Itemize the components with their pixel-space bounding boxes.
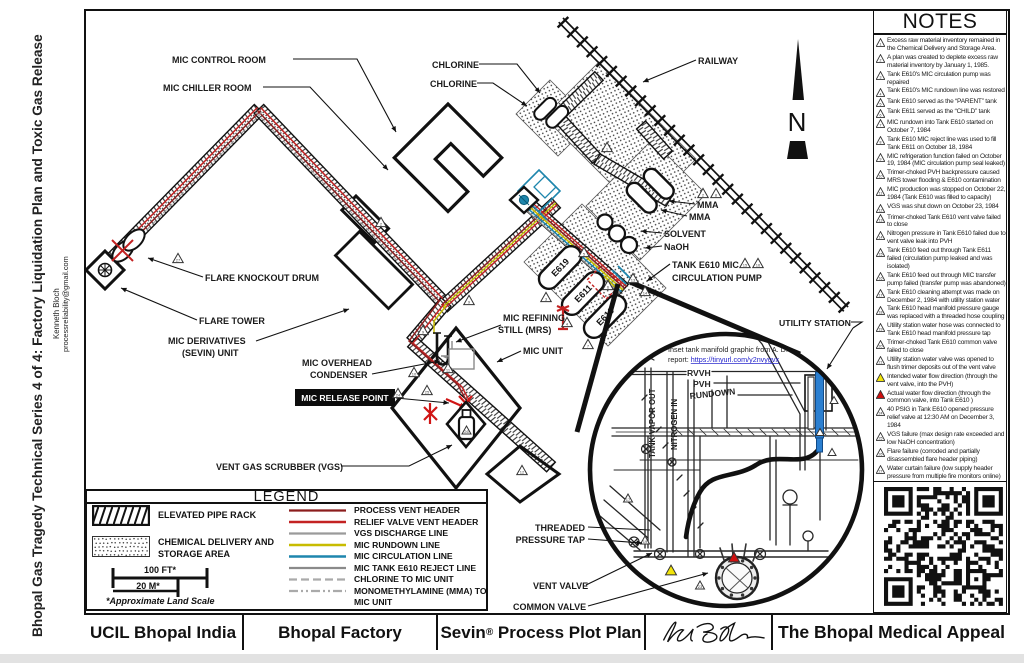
svg-text:17: 17 — [626, 497, 631, 502]
svg-text:N: N — [788, 107, 807, 137]
svg-text:MIC CONTROL ROOM: MIC CONTROL ROOM — [172, 55, 266, 65]
svg-text:TANK E610 MIC: TANK E610 MIC — [672, 260, 739, 270]
svg-text:18: 18 — [879, 310, 883, 314]
svg-text:5: 5 — [880, 103, 882, 107]
svg-text:13: 13 — [879, 218, 883, 222]
svg-text:THREADED: THREADED — [535, 523, 586, 533]
svg-text:25: 25 — [879, 436, 883, 440]
svg-text:MIC OVERHEAD: MIC OVERHEAD — [302, 358, 373, 368]
svg-text:14: 14 — [879, 235, 883, 239]
svg-text:11: 11 — [879, 191, 883, 195]
svg-text:COMMON VALVE: COMMON VALVE — [513, 602, 586, 612]
svg-text:10: 10 — [412, 371, 417, 376]
svg-text:25: 25 — [425, 389, 430, 394]
svg-text:24: 24 — [879, 411, 883, 415]
svg-text:13: 13 — [631, 277, 636, 282]
svg-text:TANK-VAPOR OUT: TANK-VAPOR OUT — [648, 388, 657, 458]
svg-text:12: 12 — [520, 469, 525, 474]
svg-text:2: 2 — [880, 59, 882, 63]
svg-text:24: 24 — [396, 392, 401, 397]
svg-text:26: 26 — [879, 453, 883, 457]
svg-text:21: 21 — [879, 361, 883, 365]
svg-text:16: 16 — [879, 277, 883, 281]
svg-text:14: 14 — [643, 290, 648, 295]
svg-text:17: 17 — [879, 294, 883, 298]
svg-text:MMA: MMA — [689, 212, 711, 222]
svg-text:MIC RELEASE POINT: MIC RELEASE POINT — [301, 393, 389, 403]
svg-text:VENT VALVE: VENT VALVE — [533, 581, 588, 591]
svg-text:(SEVIN) UNIT: (SEVIN) UNIT — [182, 348, 239, 358]
svg-text:NaOH: NaOH — [664, 242, 689, 252]
svg-text:RVVH: RVVH — [687, 368, 711, 378]
svg-text:9: 9 — [880, 157, 882, 161]
svg-text:100 FT*: 100 FT* — [144, 565, 177, 575]
svg-text:15: 15 — [879, 252, 883, 256]
svg-text:7: 7 — [880, 124, 882, 128]
svg-text:20: 20 — [879, 344, 883, 348]
svg-text:16: 16 — [756, 262, 761, 267]
svg-text:CHLORINE: CHLORINE — [430, 79, 477, 89]
svg-text:27: 27 — [879, 470, 883, 474]
svg-text:MIC DERIVATIVES: MIC DERIVATIVES — [168, 336, 246, 346]
svg-text:26: 26 — [464, 429, 469, 434]
svg-text:19: 19 — [643, 539, 648, 544]
svg-text:10: 10 — [879, 174, 883, 178]
svg-text:27: 27 — [176, 257, 181, 262]
svg-text:19: 19 — [879, 327, 883, 331]
svg-text:CHLORINE: CHLORINE — [432, 60, 479, 70]
svg-text:FLARE KNOCKOUT DRUM: FLARE KNOCKOUT DRUM — [205, 273, 319, 283]
svg-text:8: 8 — [880, 141, 882, 145]
svg-text:6: 6 — [880, 113, 882, 117]
svg-text:23: 23 — [698, 584, 703, 589]
svg-text:STILL (MRS): STILL (MRS) — [498, 325, 551, 335]
svg-text:1: 1 — [880, 42, 882, 46]
svg-text:15: 15 — [743, 262, 748, 267]
svg-text:4: 4 — [880, 92, 882, 96]
svg-text:3: 3 — [880, 76, 882, 80]
svg-text:MMA: MMA — [697, 200, 719, 210]
svg-text:report: https://tinyurl.com/y2: report: https://tinyurl.com/y2nvygvx — [668, 355, 779, 364]
svg-text:PVH: PVH — [693, 379, 711, 389]
svg-text:MIC REFINING: MIC REFINING — [503, 313, 565, 323]
svg-text:NITROGEN IN: NITROGEN IN — [670, 399, 679, 450]
svg-text:12: 12 — [879, 208, 883, 212]
svg-text:20 M*: 20 M* — [136, 581, 160, 591]
svg-text:UTILITY STATION: UTILITY STATION — [779, 318, 851, 328]
svg-text:RAILWAY: RAILWAY — [698, 56, 738, 66]
svg-text:PRESSURE TAP: PRESSURE TAP — [516, 535, 585, 545]
svg-text:CONDENSER: CONDENSER — [310, 370, 368, 380]
svg-text:MIC CHILLER ROOM: MIC CHILLER ROOM — [163, 83, 252, 93]
svg-text:FLARE TOWER: FLARE TOWER — [199, 316, 265, 326]
svg-text:MIC UNIT: MIC UNIT — [523, 346, 563, 356]
svg-text:SOLVENT: SOLVENT — [664, 229, 706, 239]
svg-text:VENT GAS SCRUBBER (VGS): VENT GAS SCRUBBER (VGS) — [216, 462, 343, 472]
svg-text:CIRCULATION PUMP: CIRCULATION PUMP — [672, 273, 762, 283]
